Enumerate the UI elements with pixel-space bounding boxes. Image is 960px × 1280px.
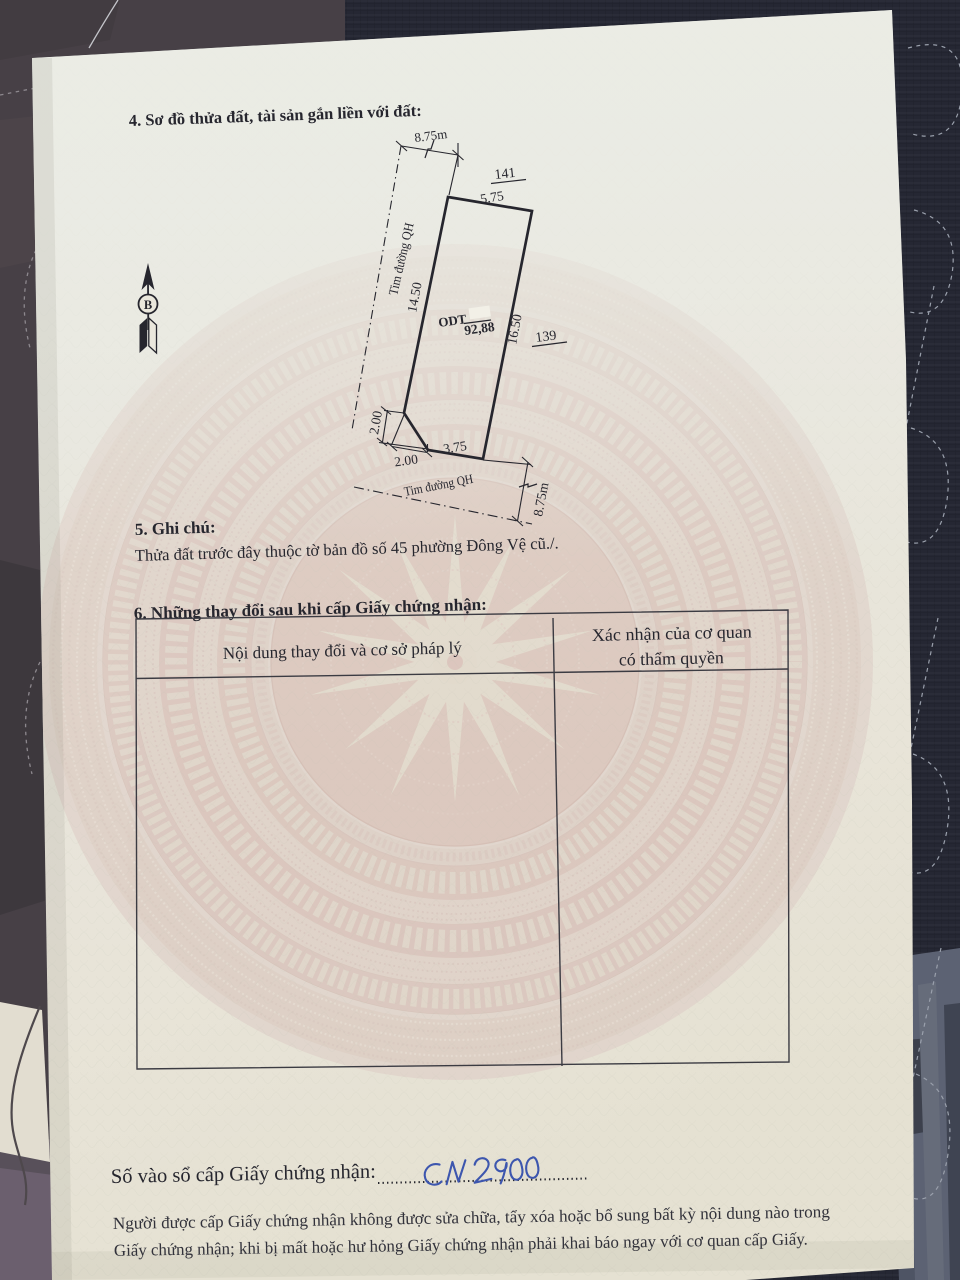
svg-text:có thẩm quyền: có thẩm quyền: [619, 647, 725, 669]
svg-text:Xác nhận của cơ quan: Xác nhận của cơ quan: [592, 621, 753, 645]
svg-text:5. Ghi chú:: 5. Ghi chú:: [135, 517, 216, 539]
svg-text:B: B: [144, 298, 152, 312]
